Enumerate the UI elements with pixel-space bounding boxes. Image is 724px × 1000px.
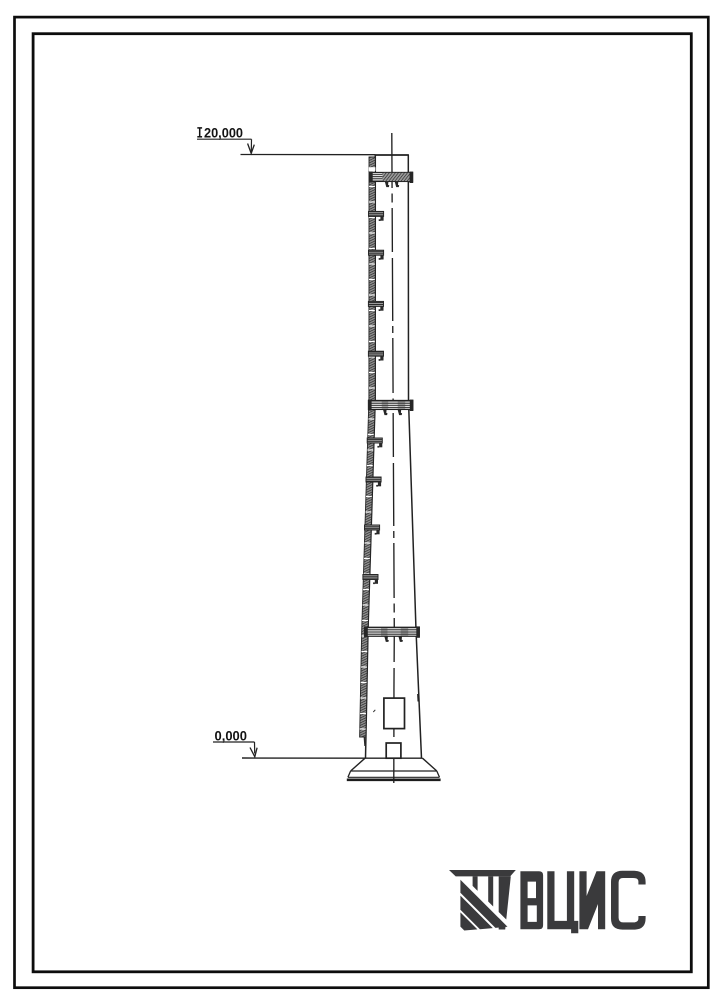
svg-text:20,000: 20,000 <box>204 125 243 140</box>
svg-text:0,000: 0,000 <box>215 728 248 743</box>
